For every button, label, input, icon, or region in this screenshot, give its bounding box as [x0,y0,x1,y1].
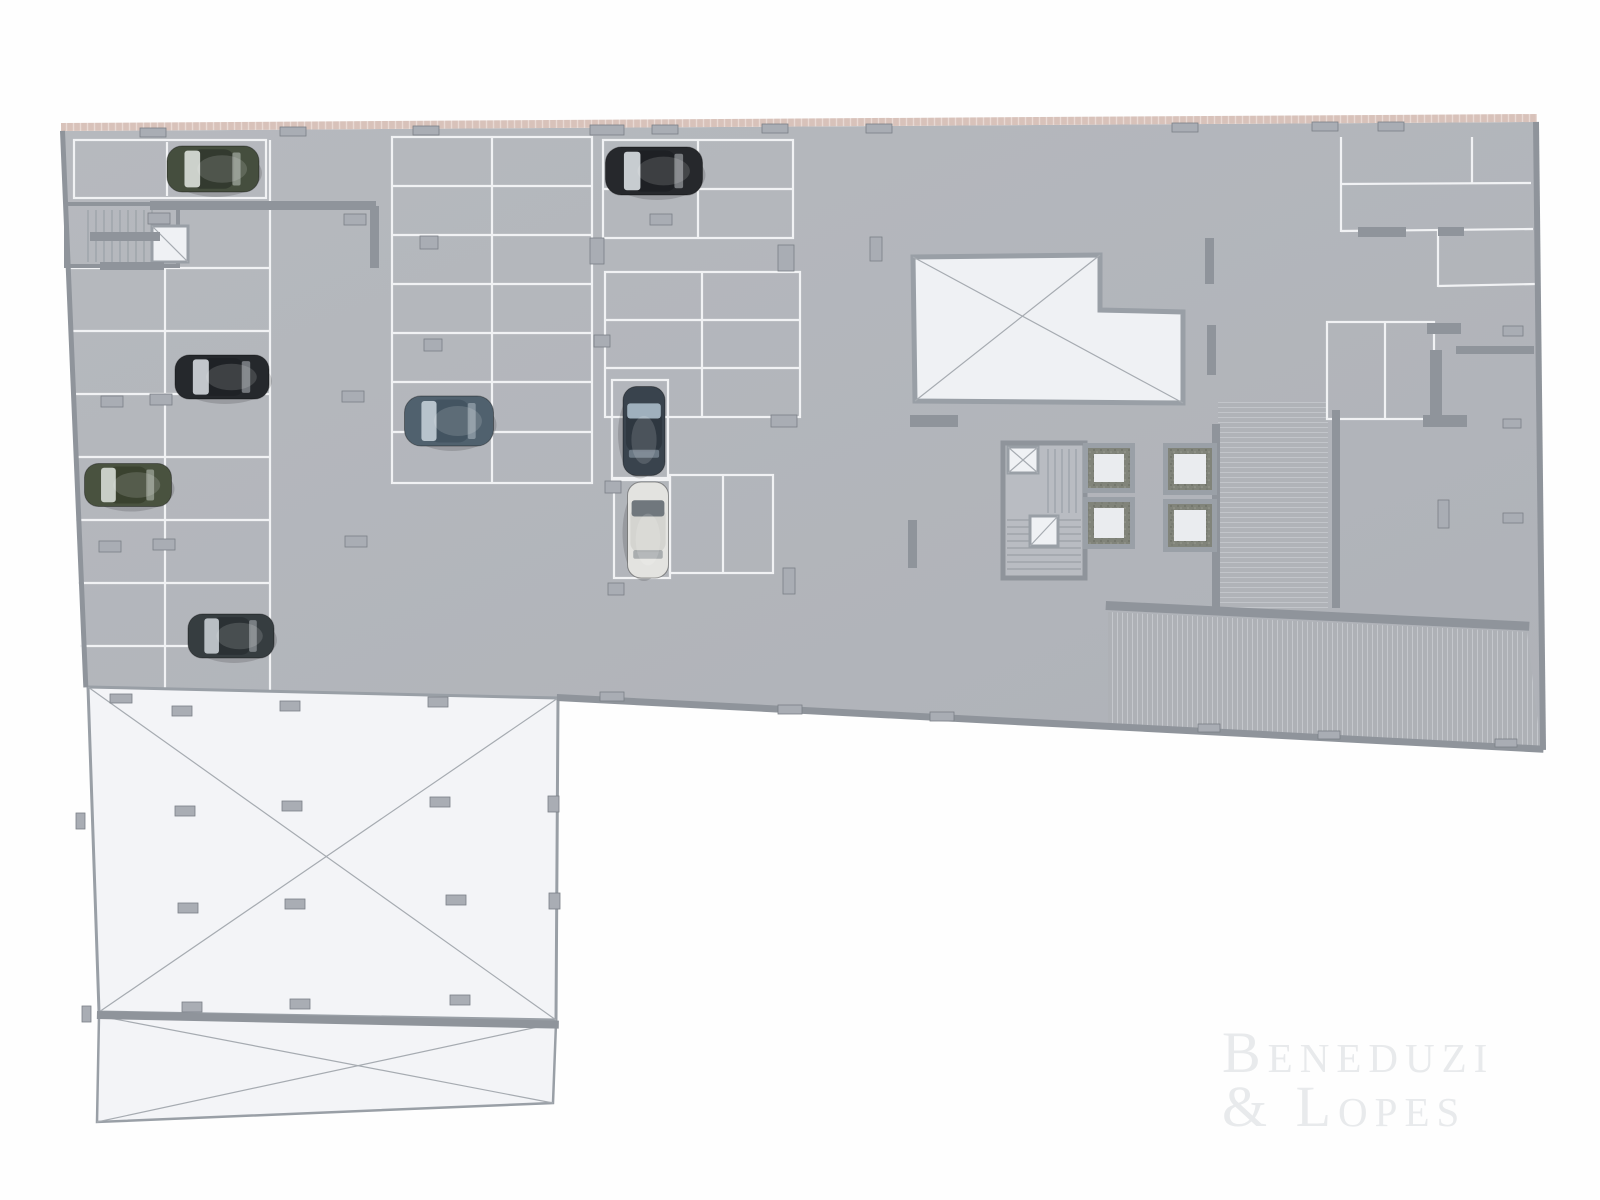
column-stub [430,797,450,807]
column-stub [605,481,621,493]
car-sheen [636,514,661,566]
column-stub [1495,739,1517,747]
wall-segment [1427,323,1461,334]
floor-plan: Beneduzi & Lopes [0,0,1600,1200]
column-stub [153,539,175,550]
column-stub [178,903,198,913]
car-sheen [638,157,690,186]
wall-segment [910,415,958,427]
column-stub [99,541,121,552]
column-stub [282,801,302,811]
parking-line [1341,183,1531,184]
column-stub [172,706,192,716]
elevator-cab [1094,454,1124,482]
column-stub [650,214,672,225]
column-stub [82,1006,91,1022]
wall-segment [1438,227,1464,236]
car [175,355,272,404]
column-stub [428,697,448,707]
wall-segment [1423,415,1467,427]
car [167,146,262,197]
column-stub [1172,123,1198,132]
column-stub [548,796,559,812]
column-stub [110,694,132,703]
ramp-hatch [1218,402,1328,610]
floor-plan-svg [0,0,1600,1200]
car-sheen [206,364,257,390]
column-stub [280,701,300,711]
column-stub [930,712,954,721]
column-stub [778,245,794,271]
column-stub [140,128,166,137]
column-stub [778,705,802,714]
wall-segment [1332,410,1340,608]
column-stub [285,899,305,909]
column-stub [1318,731,1340,739]
column-stub [1503,419,1521,428]
car [618,387,665,479]
car [188,614,277,663]
wall-segment [1456,346,1534,354]
column-stub [420,236,438,249]
car [85,464,175,512]
elevator-cab [1174,454,1206,484]
column-stub [1312,122,1338,131]
roof-panel [97,1016,556,1122]
column-stub [1503,513,1523,523]
column-stub [76,813,85,829]
car [405,396,497,451]
column-stub [600,692,624,701]
column-stub [342,391,364,402]
elevator-cab [1094,508,1124,538]
column-stub [413,126,439,135]
column-stub [290,999,310,1009]
car [623,482,669,581]
column-stub [101,396,123,407]
car-sheen [216,623,262,649]
column-stub [175,806,195,816]
column-stub [1198,724,1220,732]
car-sheen [631,416,656,464]
car-sheen [434,406,482,436]
column-stub [345,536,367,547]
column-stub [1378,122,1404,131]
column-stub [590,238,604,264]
column-stub [1503,326,1523,336]
wall-segment [150,201,376,210]
column-stub [866,124,892,133]
car [606,147,706,200]
wall-segment [1358,227,1406,237]
column-stub [771,415,797,427]
car-sheen [197,155,247,183]
column-stub [150,394,172,405]
column-stub [424,339,442,351]
wall-segment [370,206,379,268]
column-stub [594,335,610,347]
column-stub [182,1002,202,1012]
column-stub [446,895,466,905]
column-stub [590,125,624,135]
car-sheen [113,472,160,498]
column-stub [870,237,882,261]
column-stub [608,583,624,595]
column-stub [549,893,560,909]
wall-segment [90,232,160,241]
wall-segment [908,520,917,568]
wall-segment [1207,325,1216,375]
wall-segment [100,262,164,270]
column-stub [1438,500,1449,528]
wall-segment [1205,238,1214,284]
column-stub [652,125,678,134]
wall-segment [1430,350,1442,420]
column-stub [450,995,470,1005]
column-stub [148,213,170,224]
column-stub [783,568,795,594]
column-stub [280,127,306,136]
elevator-cab [1174,510,1206,541]
column-stub [762,124,788,133]
column-stub [344,214,366,225]
